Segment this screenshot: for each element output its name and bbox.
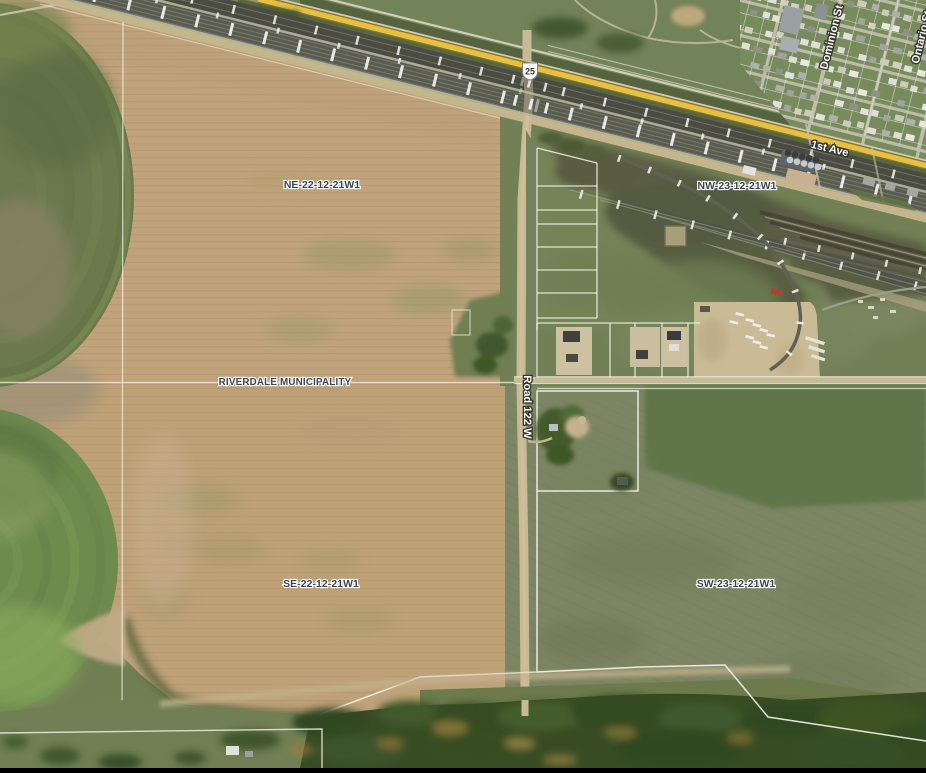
svg-text:SE-22-12-21W1: SE-22-12-21W1 <box>283 579 359 590</box>
svg-text:Road 122 W: Road 122 W <box>521 375 533 439</box>
svg-text:NE-22-12-21W1: NE-22-12-21W1 <box>284 180 360 191</box>
svg-text:RIVERDALE MUNICIPALITY: RIVERDALE MUNICIPALITY <box>219 377 352 388</box>
svg-text:NW-23-12-21W1: NW-23-12-21W1 <box>697 181 776 192</box>
svg-text:SW-23-12-21W1: SW-23-12-21W1 <box>697 579 776 590</box>
svg-text:25: 25 <box>525 67 535 77</box>
